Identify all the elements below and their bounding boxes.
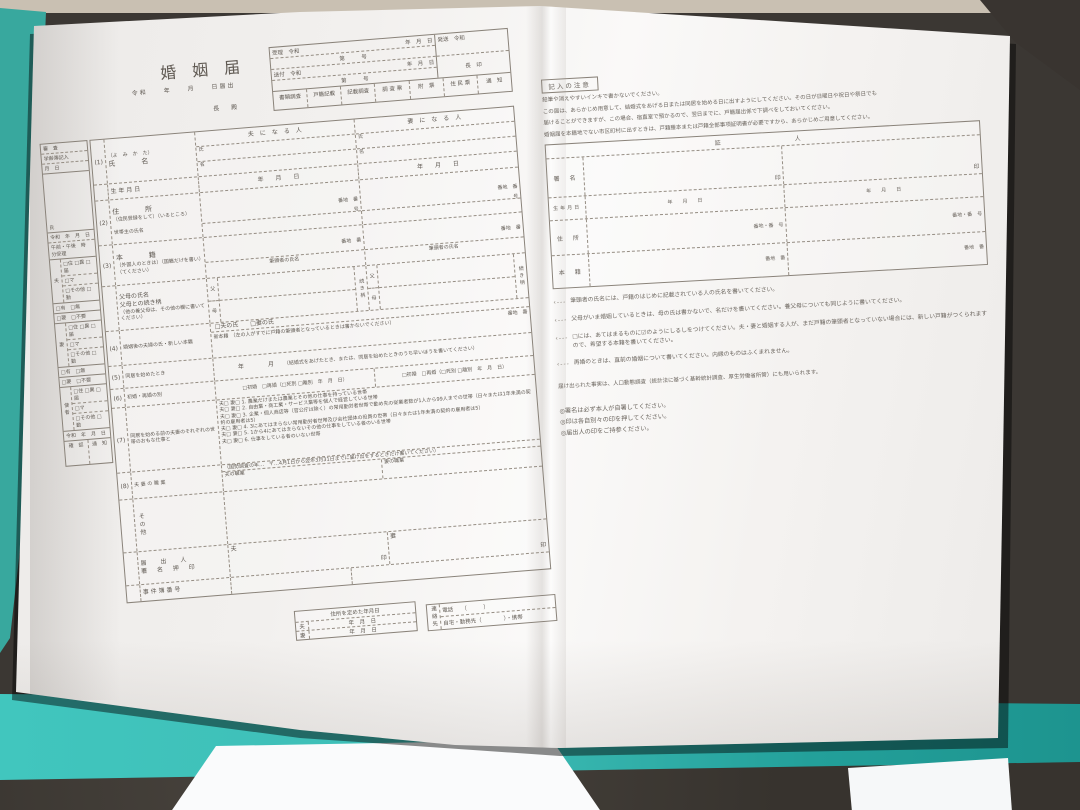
banchi-label: 番地 番	[505, 307, 531, 334]
father-label: 父	[207, 278, 219, 301]
bullet-text: 再婚のときは、直前の婚姻について書いてください。内縁のものはふくまれません。	[574, 347, 794, 368]
contact-box: 連絡先 電話 （ ） 自宅・勤務先（ ）・携帯	[426, 594, 558, 631]
new-honseki-label: 新本籍	[211, 331, 232, 358]
bullet-text: 筆頭者の氏名には、戸籍のはじめに記載されている人の氏名を書いてください。	[570, 286, 778, 307]
seal-mark: 印	[775, 175, 781, 183]
cohabitation-value: 年 月	[238, 361, 275, 372]
sidebar-messenger-block: 使者 □住 □異 □届 □マ □その他 □勤	[60, 384, 109, 432]
seal-mark: 印	[540, 542, 547, 550]
form-addressee: 長 殿	[213, 104, 241, 114]
wife-checkboxes-3: □その他 □勤	[68, 347, 104, 366]
sidebar-husband-block: 夫 □住 □異 □届 □マ □その他 □勤	[50, 257, 99, 305]
stamp-cell: 住 民 票	[443, 76, 478, 97]
seal-mark: 印	[381, 555, 388, 563]
form-date-line: 令和 年 月 日届出	[132, 82, 236, 98]
hittosha-label: 筆頭者の氏名	[269, 256, 299, 265]
leader-arrow-icon: ‹---	[554, 316, 567, 326]
form-main-table: (1) （よ み か た） 氏 名 夫 に な る 人 氏 名 妻 に な る …	[89, 106, 551, 604]
notes-page: 記入の注意 鉛筆や消えやすいインキで書かないでください。 この届は、あらかじめ用…	[541, 50, 1008, 633]
mother-label: 母	[209, 300, 221, 322]
receipt-box: 受理 令和 年 月 日 第 号 送付 令和 年 月 日 第 号 発送 令和 長 …	[269, 28, 513, 111]
wife-sign-label: 妻	[390, 533, 397, 541]
confirm-cell: 確 認	[64, 440, 89, 466]
photo-of-marriage-registration-form: 婚 姻 届 令和 年 月 日届出 長 殿 . 受理 令和 年 月 日 第 号 送…	[0, 0, 1080, 810]
stamp-cell: 記載調査	[341, 84, 376, 105]
stamp-cell: 通 知	[477, 73, 511, 94]
other-label: その他	[136, 513, 146, 538]
banchi-bango-label: 番地・番 号	[952, 211, 982, 219]
banchi-label: 番地 番	[497, 184, 517, 192]
banchi-label: 番地 番	[501, 225, 521, 233]
banchi-bango-label: 番地・番 号	[753, 222, 783, 230]
stamp-cell: 書類調査	[273, 89, 308, 110]
address-set-date-box: 住所を定めた年月日 夫 年 月 日 妻 年 月 日	[294, 601, 418, 641]
banchi-label: 番地 番	[338, 197, 358, 205]
husband-checkboxes-3: □その他 □勤	[63, 284, 99, 303]
father-label: 父	[366, 265, 378, 288]
stamp-cell: 附 票	[409, 78, 444, 99]
witness-address-label: 住 所	[550, 219, 589, 255]
banchi-label: 番地 番	[964, 244, 984, 251]
banchi-label: 番地 番	[341, 237, 361, 245]
husband-mark: 夫	[296, 622, 310, 631]
wife-mark: 妻	[296, 631, 310, 640]
householder-label: 世帯主の氏名	[114, 223, 200, 236]
form-title: 婚 姻 届	[159, 54, 241, 84]
sidebar-wife-block: 妻 □住 □異 □届 □マ □その他 □勤	[55, 321, 104, 369]
witness-birthdate-label: 生年月日	[549, 196, 587, 220]
notes-header: 記入の注意	[541, 76, 598, 93]
leader-arrow-icon: ‹---	[557, 360, 570, 370]
household-work-label: 同居を始める前の夫妻のそれぞれの世帯のおもな仕事と	[126, 400, 222, 471]
hittosha-label: 筆頭者の氏名	[429, 244, 459, 253]
form-page: 婚 姻 届 令和 年 月 日届出 長 殿 . 受理 令和 年 月 日 第 号 送…	[33, 26, 559, 702]
banchi-label: 番地 番	[765, 255, 785, 262]
stamp-cell: 調 査 票	[375, 81, 410, 102]
mother-label: 母	[368, 288, 380, 310]
leader-arrow-icon: ‹---	[553, 298, 566, 308]
messenger-checkboxes-3: □その他 □勤	[73, 411, 109, 430]
row-number: (6)	[110, 389, 125, 408]
stamp-cell: 戸籍記載	[307, 86, 342, 107]
witness-signature-label: 署 名	[546, 157, 585, 197]
husband-sign-label: 夫	[230, 545, 237, 553]
seal-mark: 印	[973, 164, 979, 172]
witness-honseki-label: 本 籍	[552, 254, 591, 288]
form-sheet: 婚 姻 届 令和 年 月 日届出 長 殿 . 受理 令和 年 月 日 第 号 送…	[0, 0, 1080, 810]
leader-arrow-icon: ‹---	[555, 334, 569, 352]
witness-box: 証 人 署 名 印 印 生年月日 年 月 日 年 月 日 住 所 番地・番 号 …	[545, 120, 988, 289]
notice-cell: 通 知	[88, 438, 112, 464]
